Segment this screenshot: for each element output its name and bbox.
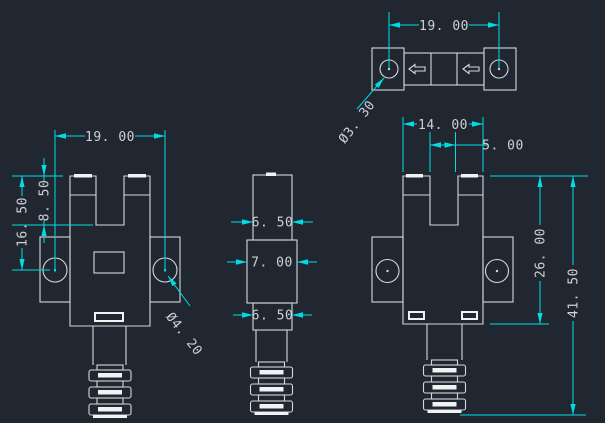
dim-label: 14. 00	[418, 118, 468, 133]
back-view	[372, 174, 513, 413]
dim-side-lower-width: 6. 50	[233, 309, 312, 324]
dim-label: 19. 00	[419, 19, 469, 34]
back-right-indicator	[462, 312, 477, 319]
side-view	[247, 173, 297, 416]
dim-back-body-width: 14. 00	[403, 117, 483, 173]
cad-viewport: 19. 00 Ø3. 30 19. 00 16. 50	[0, 0, 605, 423]
dim-label: 6. 50	[252, 216, 294, 231]
front-right-sensor-window	[128, 174, 146, 178]
top-body	[404, 53, 484, 85]
dim-front-hole-diameter: Ø4. 20	[162, 276, 205, 359]
dim-side-middle-width: 7. 00	[227, 256, 317, 271]
front-body	[70, 176, 150, 326]
back-body	[403, 176, 483, 324]
dim-top-hole-diameter: Ø3. 30	[336, 78, 384, 147]
front-view	[40, 174, 180, 418]
dim-side-upper-width: 6. 50	[231, 216, 313, 231]
dim-label: 7. 00	[251, 256, 293, 271]
front-cable-slot	[95, 313, 123, 321]
dim-front-hole-span: 19. 00	[55, 129, 165, 273]
back-left-sensor-window	[406, 174, 423, 178]
dim-label: 26. 00	[534, 228, 549, 278]
dim-label: 41. 50	[567, 268, 582, 318]
dim-label: 16. 50	[16, 197, 31, 247]
dim-label: 6. 50	[252, 309, 294, 324]
dim-label: 8. 50	[38, 180, 53, 222]
dim-label: Ø4. 20	[162, 310, 205, 359]
back-right-sensor-window	[461, 174, 478, 178]
left-arrow-icon	[463, 65, 479, 74]
dim-top-hole-span: 19. 00	[389, 12, 499, 69]
front-left-sensor-window	[74, 174, 92, 178]
dim-label: 19. 00	[85, 130, 135, 145]
dim-label: Ø3. 30	[336, 98, 379, 147]
side-middle-section	[247, 240, 297, 303]
dim-label: 5. 00	[482, 139, 524, 154]
dim-back-slot-width: 5. 00	[430, 132, 524, 172]
side-sensor-window	[266, 173, 276, 177]
front-center-window	[94, 252, 124, 273]
cad-drawing: 19. 00 Ø3. 30 19. 00 16. 50	[0, 0, 605, 423]
back-left-indicator	[409, 312, 424, 319]
top-view	[372, 48, 516, 90]
dim-back-overall-height: 41. 50	[460, 176, 586, 415]
left-arrow-icon	[409, 65, 425, 74]
